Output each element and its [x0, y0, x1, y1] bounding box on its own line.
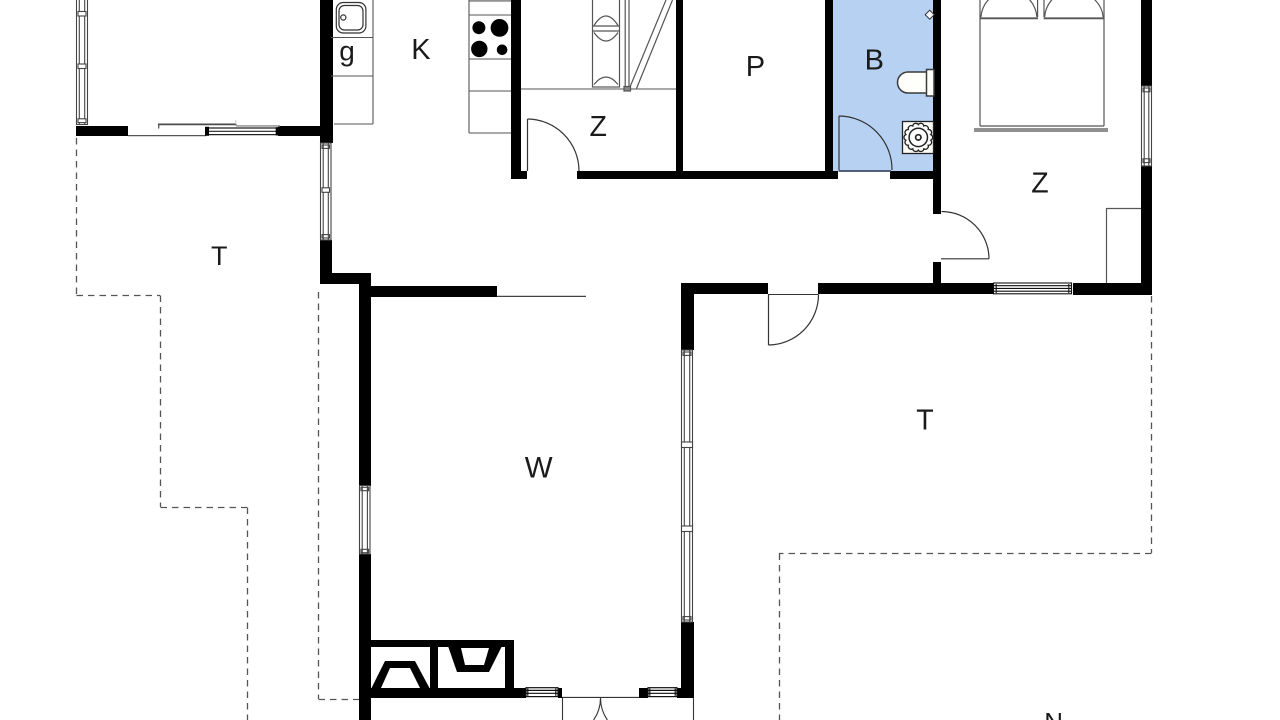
- svg-text:N: N: [1044, 707, 1063, 720]
- svg-text:T: T: [211, 241, 228, 271]
- svg-text:B: B: [865, 45, 884, 77]
- svg-text:g: g: [339, 36, 355, 67]
- svg-text:P: P: [746, 51, 765, 83]
- svg-text:T: T: [916, 405, 933, 437]
- svg-text:W: W: [525, 452, 553, 485]
- svg-text:Z: Z: [1031, 167, 1048, 199]
- svg-text:K: K: [411, 34, 431, 66]
- svg-text:Z: Z: [590, 111, 607, 143]
